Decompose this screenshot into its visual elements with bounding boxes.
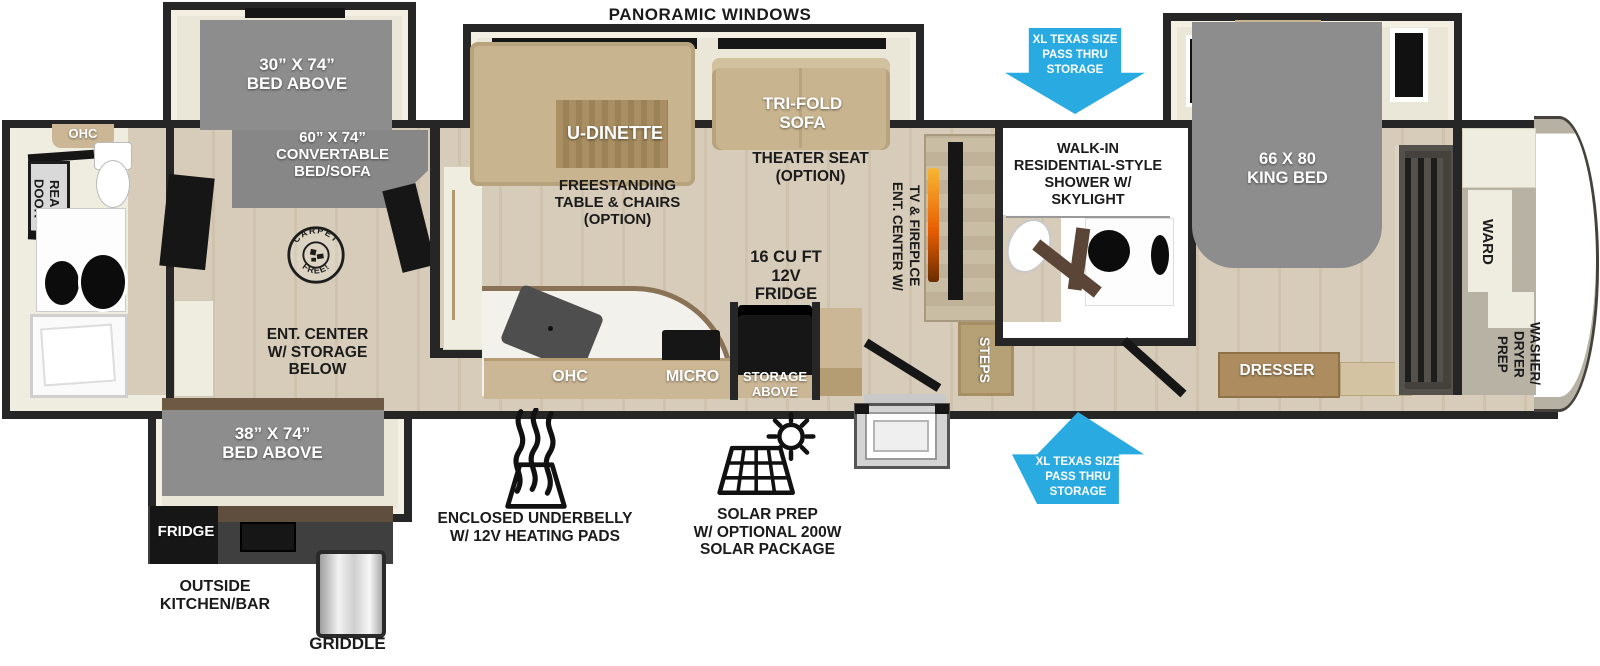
shower-label: WALK-IN RESIDENTIAL-STYLE SHOWER W/ SKYL…	[1000, 141, 1176, 209]
microwave	[662, 330, 720, 360]
washer-dryer-label: WASHER/ DRYER PREP	[1494, 304, 1543, 404]
bunkroom-cabinet	[174, 300, 214, 397]
pantry	[443, 166, 483, 350]
dinette-window-right	[718, 38, 886, 49]
fridge-12v	[738, 305, 812, 375]
rv-floorplan-diagram: PANORAMIC WINDOWS FRIDGE OUTSIDE KITCHEN…	[0, 0, 1600, 666]
king-bed-label: 66 X 80 KING BED	[1205, 150, 1370, 187]
panoramic-windows-label: PANORAMIC WINDOWS	[480, 5, 940, 24]
storage-above-label: STORAGE ABOVE	[736, 370, 814, 399]
rear-bath-shower-pan	[40, 324, 116, 387]
outside-fridge-label: FRIDGE	[150, 524, 222, 541]
pass-thru-arrow-top: XL TEXAS SIZE PASS THRU STORAGE	[1005, 28, 1145, 114]
freestanding-label: FREESTANDING TABLE & CHAIRS (OPTION)	[535, 178, 700, 229]
pass-thru-bottom-label: XL TEXAS SIZE PASS THRU STORAGE	[1036, 455, 1121, 500]
bunkroom-tv	[159, 174, 214, 270]
underbelly-label: ENCLOSED UNDERBELLY W/ 12V HEATING PADS	[420, 510, 650, 545]
bunk-bed-label: 30” X 74” BED ABOVE	[212, 55, 382, 93]
rear-bath-sink-right	[78, 252, 128, 312]
u-dinette-label: U-DINETTE	[540, 123, 690, 143]
entry-threshold	[864, 394, 946, 403]
pass-thru-top-label: XL TEXAS SIZE PASS THRU STORAGE	[1033, 33, 1118, 78]
outside-cooktop	[240, 522, 296, 552]
fireplace-flame	[928, 168, 939, 282]
fridge-12v-label: 16 CU FT 12V FRIDGE	[735, 248, 837, 304]
tri-fold-sofa-label: TRI-FOLD SOFA	[735, 94, 870, 132]
micro-label: MICRO	[650, 368, 735, 386]
theater-seat-label: THEATER SEAT (OPTION)	[728, 150, 893, 185]
ent-center-tv	[948, 142, 963, 300]
ohc-kitchen-label: OHC	[530, 368, 610, 386]
carpet-free-stamp: CARPET FREE!	[286, 225, 346, 285]
outside-kitchen-counter	[218, 506, 393, 522]
rear-bath-toilet	[96, 160, 130, 208]
convertible-bed-label: 60” X 74” CONVERTABLE BED/SOFA	[245, 130, 420, 181]
bunkroom-wall	[430, 128, 440, 353]
bathroom-sink-right	[1148, 232, 1172, 278]
kitchen-end-cabinet	[820, 308, 862, 396]
entry-step-corner-right	[935, 404, 949, 414]
bedroom-closet-slats	[1405, 158, 1443, 382]
pantry-handle	[452, 190, 455, 320]
ent-center-storage-label: ENT. CENTER W/ STORAGE BELOW	[225, 326, 410, 379]
king-bed	[1192, 22, 1382, 268]
kitchen-sink-drain	[548, 326, 553, 331]
outside-kitchen-label: OUTSIDE KITCHEN/BAR	[120, 578, 310, 614]
entry-step-tread-inner	[873, 420, 929, 452]
solar-panel-sun-icon	[716, 408, 816, 506]
bunk-window	[245, 8, 345, 18]
ent-center-tv-label: ENT. CENTER W/ TV & FIREPLCE	[888, 138, 922, 334]
solar-label: SOLAR PREP W/ OPTIONAL 200W SOLAR PACKAG…	[660, 506, 875, 559]
bathroom-sink	[1088, 230, 1130, 272]
rear-bath-ohc-label: OHC	[52, 127, 114, 142]
front-ohc	[1462, 128, 1536, 188]
bedroom-front-wall	[1453, 128, 1462, 395]
pass-thru-arrow-bottom: XL TEXAS SIZE PASS THRU STORAGE	[1012, 412, 1144, 504]
heat-waves-icon	[488, 408, 584, 512]
griddle-label: GRIDDLE	[285, 634, 410, 653]
griddle	[316, 550, 386, 638]
steps-label: STEPS	[976, 328, 992, 392]
entry-steps-exterior	[854, 403, 950, 469]
ward-label: WARD	[1478, 198, 1495, 286]
front-cap	[1534, 116, 1599, 412]
dresser-label: DRESSER	[1218, 362, 1336, 380]
rear-bath-sink-left	[42, 258, 82, 308]
entry-step-corner-left	[855, 404, 869, 414]
kingbed-window-right	[1390, 28, 1428, 102]
bed38-label: 38” X 74” BED ABOVE	[185, 424, 360, 462]
